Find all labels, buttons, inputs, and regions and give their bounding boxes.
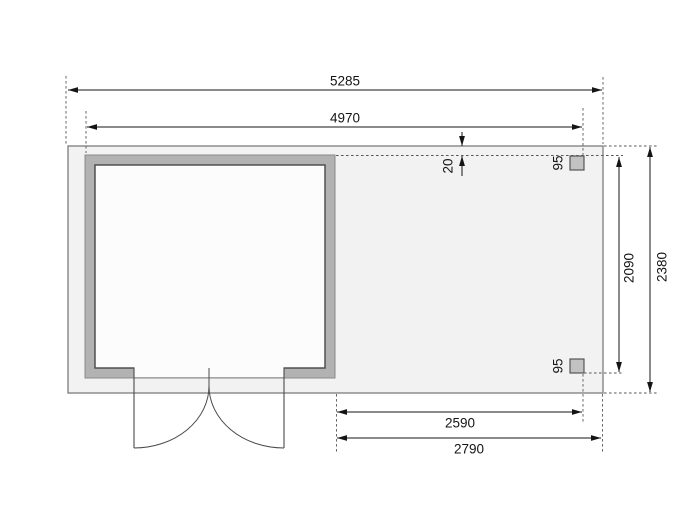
cabin-interior [95,165,325,368]
dim-label-post-bottom: 95 [551,358,566,373]
dim-label-front-gap: 20 [441,158,456,173]
post-front-top [570,156,584,170]
dim-label-post-top: 95 [551,155,566,170]
dim-label-canopy-width: 2590 [445,416,475,431]
dim-label-canopy-depth: 2090 [622,253,637,283]
dim-label-cabin-width: 4970 [330,111,360,126]
dim-label-overall-width: 5285 [330,74,360,89]
door-swing-left-arc [134,386,209,448]
post-front-bottom [570,359,584,373]
floorplan-canvas: 5285 4970 20 95 95 2090 2380 2590 2790 [0,0,700,525]
door-swing-right-arc [209,386,284,448]
dim-label-canopy-outer-width: 2790 [454,442,484,457]
floorplan-drawing: 5285 4970 20 95 95 2090 2380 2590 2790 [0,0,700,525]
dim-label-total-depth: 2380 [655,252,670,282]
